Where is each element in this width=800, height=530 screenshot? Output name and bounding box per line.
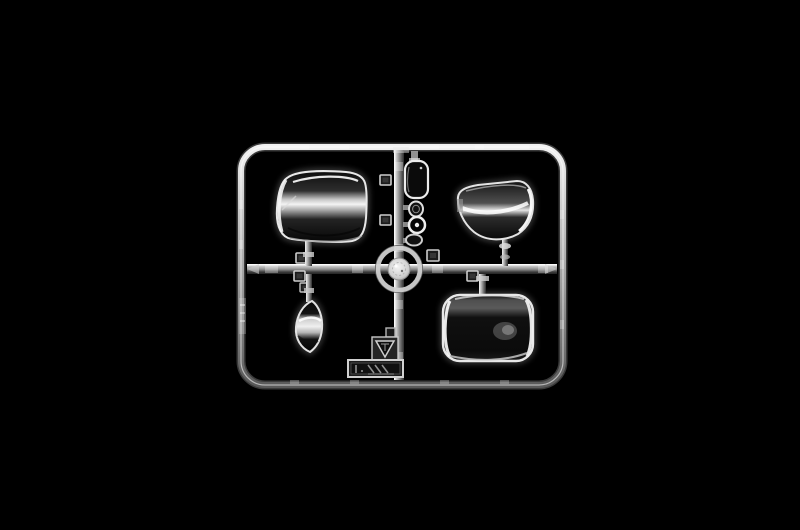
sprue-photograph [0,0,800,530]
gate-tab [380,175,391,185]
part-windscreen-upper-right [457,181,533,266]
part-lens-oval-upper [403,202,423,217]
part-lens-ring [403,217,425,233]
gate-tab [380,215,391,225]
frame-embossing [239,298,246,334]
part-stem [502,238,508,266]
part-windscreen-lower-right [443,274,533,361]
part-window-pane-top-center [405,151,428,198]
sprue-canvas [0,0,800,530]
material-triangle-mark [372,328,398,360]
part-lens-oval-lower [403,235,422,246]
gate-tab [427,250,439,261]
mold-stamp [348,360,403,377]
part-windscreen-upper-left [277,171,367,266]
gate-tab [294,271,305,281]
